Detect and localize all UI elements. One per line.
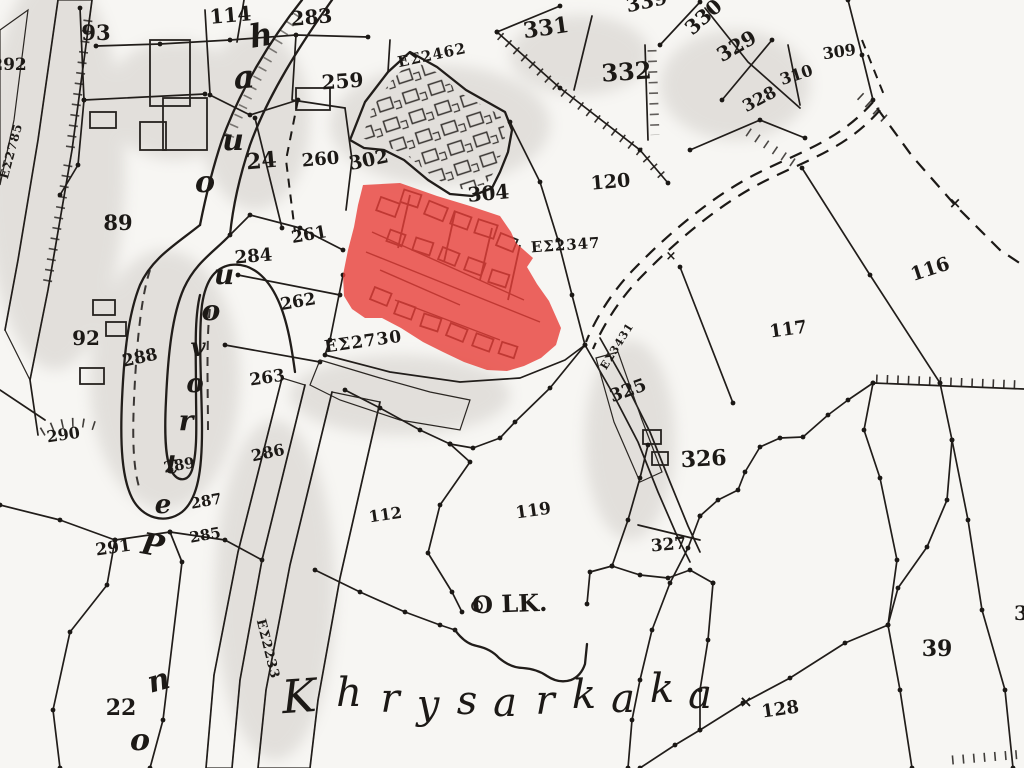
map-label-93-0: 93: [81, 20, 110, 45]
map-label-y-69: y: [415, 682, 441, 728]
map-label-u-54: u: [222, 123, 244, 158]
map-label-a-71: a: [493, 680, 517, 726]
map-label-120-34: 120: [590, 169, 631, 194]
map-label-k-75: k: [650, 666, 674, 712]
map-label-22-31: 22: [106, 695, 137, 721]
map-label-326-41: 326: [680, 445, 727, 473]
map-label-39-45: 39: [922, 636, 953, 662]
map-label-332-7: 332: [600, 55, 652, 87]
map-viewport: 93114283292259ΕΣ246233133233933032931030…: [0, 0, 1024, 768]
map-label-260-15: 260: [301, 147, 340, 171]
map-label-3-46: 3: [1014, 601, 1024, 625]
map-label-a-53: a: [232, 57, 256, 97]
map-label-292-3: 292: [0, 55, 27, 75]
map-label-e-62: e: [155, 490, 172, 520]
map-label-114-1: 114: [209, 1, 253, 29]
map-label-v-58: v: [190, 333, 206, 363]
map-label-o-59: o: [186, 369, 203, 399]
map-label-k-66: K: [279, 668, 321, 725]
map-label-t-61: t: [166, 450, 178, 480]
map-label-s-70: s: [457, 678, 478, 724]
map-label-92-22: 92: [72, 326, 100, 350]
map-label-olk-43: O LK.: [472, 588, 548, 620]
map-label-o-55: o: [195, 165, 215, 200]
map-label-u-56: u: [214, 258, 234, 291]
map-label-h-67: h: [336, 670, 362, 716]
map-label-24-14: 24: [245, 147, 278, 176]
map-label--51: ×: [666, 249, 677, 264]
map-label-89-20: 89: [103, 210, 132, 235]
map-label-a-76: a: [688, 672, 712, 718]
map-label--50: ×: [949, 194, 962, 212]
map-label-k-73: k: [572, 672, 596, 718]
map-label-r-60: r: [179, 404, 196, 437]
map-label-o-57: o: [202, 294, 221, 327]
map-label-283-2: 283: [290, 3, 334, 31]
map-label-327-42: 327: [650, 534, 687, 557]
map-label-284-19: 284: [234, 244, 273, 268]
map-label-o-65: o: [130, 723, 150, 758]
map-label-a-74: a: [611, 676, 635, 722]
map-label-304-17: 304: [467, 179, 511, 207]
cadastral-map: 93114283292259ΕΣ246233133233933032931030…: [0, 0, 1024, 768]
map-label-r-72: r: [535, 678, 557, 724]
map-label-259-4: 259: [321, 68, 364, 95]
map-label--49: ×: [739, 692, 752, 711]
map-label-r-68: r: [380, 676, 402, 722]
